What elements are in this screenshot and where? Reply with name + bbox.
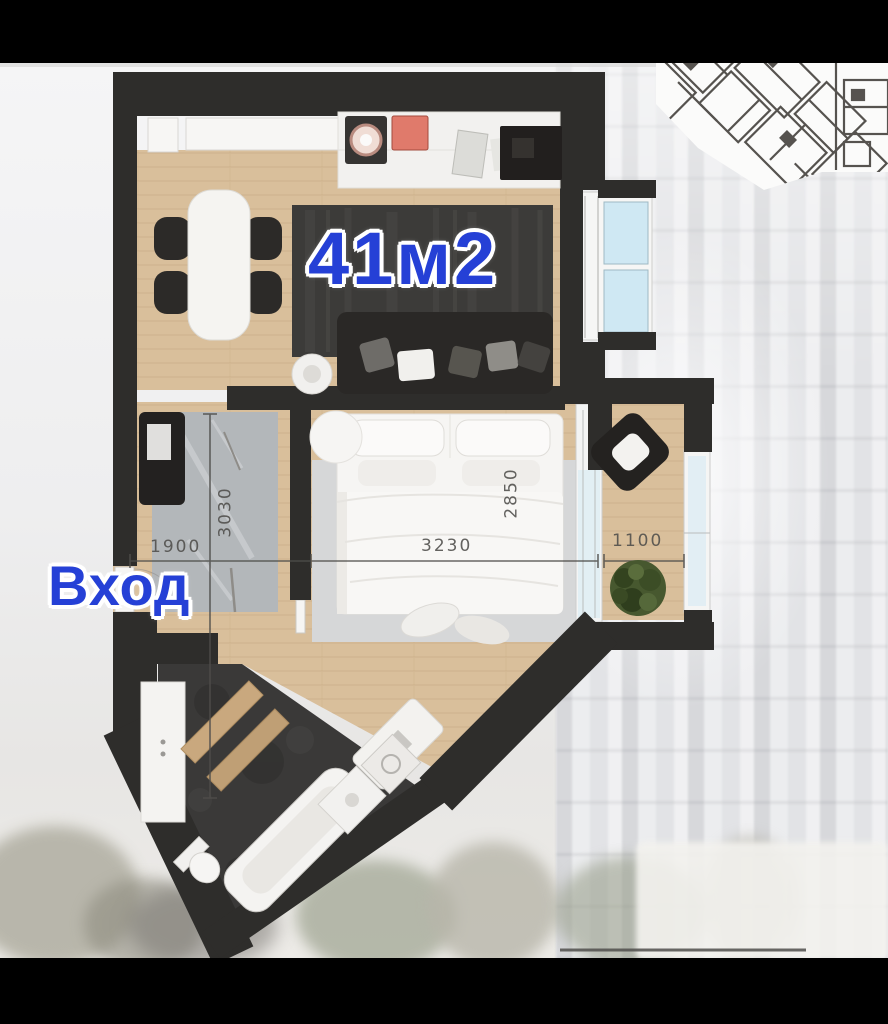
bedside-pouf bbox=[310, 411, 362, 463]
bed bbox=[337, 414, 563, 614]
dim-bedroom-width: 3230 bbox=[421, 538, 472, 555]
sofa-throw bbox=[397, 348, 435, 381]
bedroom-door bbox=[296, 600, 305, 633]
chair bbox=[245, 271, 282, 314]
pillow bbox=[456, 420, 550, 456]
letterbox-bar-top bbox=[0, 0, 888, 63]
stove bbox=[392, 116, 428, 150]
kitchen-window bbox=[186, 118, 338, 150]
floorplan-drawing bbox=[0, 0, 888, 1024]
kitchen-sink bbox=[345, 116, 387, 164]
dim-balcony-width: 1100 bbox=[612, 533, 663, 550]
living-room-bay-window bbox=[581, 180, 656, 350]
counter-item bbox=[452, 130, 488, 178]
dim-hallway-width: 1900 bbox=[150, 539, 201, 556]
balcony-side-window bbox=[684, 450, 710, 612]
chair bbox=[245, 217, 282, 260]
dim-hallway-depth: 3030 bbox=[218, 486, 235, 537]
bathroom-cabinet bbox=[141, 682, 185, 822]
pillow bbox=[350, 420, 444, 456]
sofa-pillow bbox=[485, 340, 519, 372]
entrance-label: Вход bbox=[48, 558, 190, 614]
chair bbox=[154, 217, 191, 260]
dim-bedroom-depth: 2850 bbox=[504, 467, 521, 518]
tv-cabinet bbox=[500, 126, 562, 180]
chair bbox=[154, 271, 191, 314]
side-table bbox=[292, 354, 332, 394]
floorplan-photo: 41м2 Вход 1900 3030 3230 2850 1100 bbox=[0, 0, 888, 1024]
wardrobe bbox=[139, 412, 185, 505]
area-label: 41м2 bbox=[308, 222, 498, 296]
letterbox-bar-bottom bbox=[0, 958, 888, 1024]
dining-table bbox=[188, 190, 250, 340]
kitchen bbox=[338, 112, 562, 188]
pillow bbox=[358, 460, 436, 486]
kitchen-window bbox=[148, 118, 178, 152]
potted-plant bbox=[610, 560, 666, 616]
